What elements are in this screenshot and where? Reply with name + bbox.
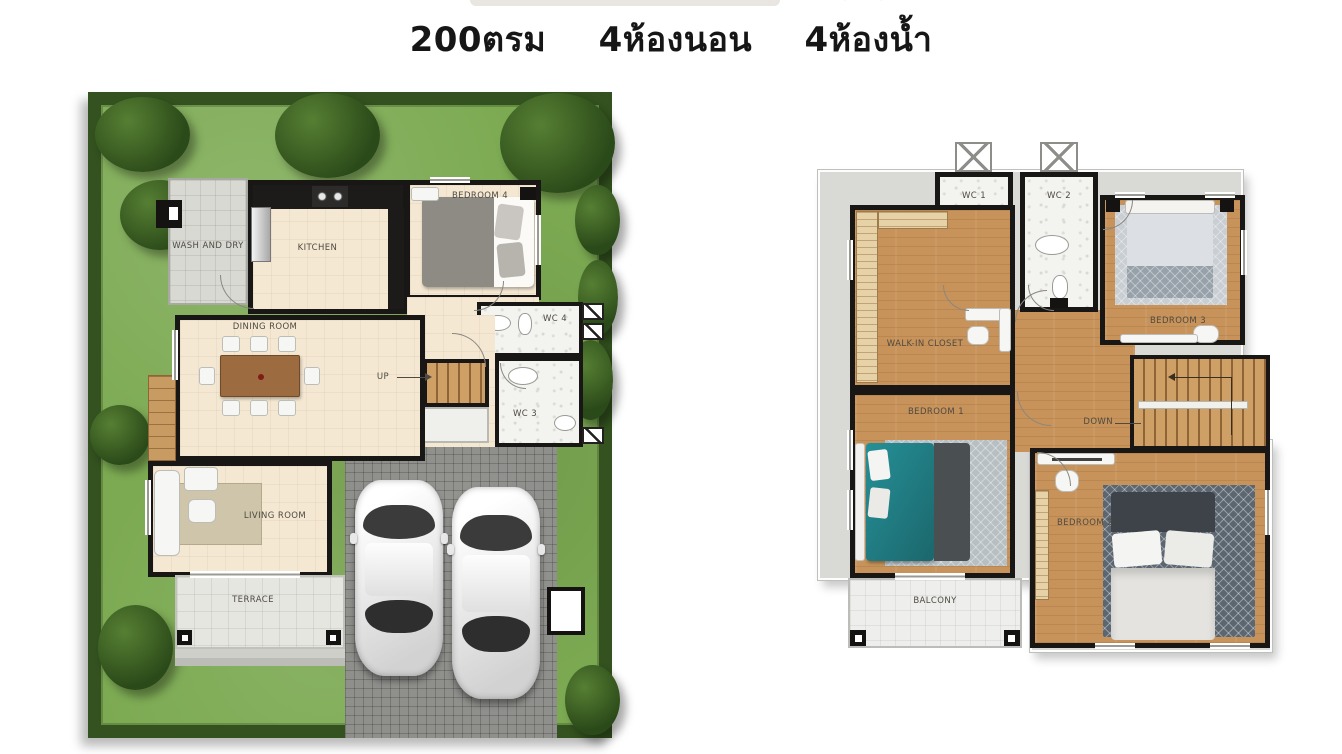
- stair-path-line: [1172, 377, 1232, 378]
- car-mirror: [441, 533, 448, 544]
- car: [452, 487, 540, 699]
- label-wc-2: WC 2: [1022, 192, 1096, 201]
- window: [1115, 192, 1145, 198]
- toilet: [1052, 275, 1068, 299]
- column-core: [1008, 635, 1015, 642]
- garden-palm-tree: [90, 405, 150, 465]
- stair-landing: [423, 407, 489, 443]
- dining-chair: [222, 400, 240, 416]
- bed-pillow: [867, 487, 890, 519]
- label-terrace: TERRACE: [203, 596, 303, 605]
- side-gate: [547, 587, 585, 635]
- garden-palm-tree: [275, 93, 380, 178]
- label-dining-room: DINING ROOM: [215, 323, 315, 332]
- label-bedroom-4: BEDROOM 4: [430, 192, 530, 201]
- car-windshield: [363, 505, 435, 538]
- balcony-column: [1004, 630, 1020, 646]
- window: [535, 215, 541, 265]
- car-mirror: [350, 533, 357, 544]
- car-mirror: [447, 544, 454, 555]
- floor-plan-page: 200ตรม 4ห้องนอน 4ห้องน้ำ: [0, 0, 1342, 754]
- closet-shelving: [878, 211, 948, 229]
- down-arrow-line: [1115, 423, 1141, 424]
- label-bedroom-3: BEDROOM 3: [1118, 317, 1238, 326]
- nightstand: [1220, 200, 1234, 212]
- column-core: [182, 635, 188, 641]
- garden-tree: [95, 97, 190, 172]
- window: [172, 330, 178, 380]
- column-core: [855, 635, 862, 642]
- terrace-column: [177, 630, 192, 645]
- up-arrow-line: [397, 377, 427, 378]
- stair-arrowhead-icon: [1168, 373, 1175, 381]
- bed-blanket: [934, 443, 970, 561]
- dining-chair: [250, 400, 268, 416]
- label-wc-4: WC 4: [530, 315, 580, 324]
- car: [355, 480, 443, 676]
- utility-meter-window: [169, 207, 178, 220]
- bed-pillow: [494, 203, 524, 240]
- roof-vent-icon: [1040, 142, 1078, 172]
- label-bedroom-1: BEDROOM 1: [876, 408, 996, 417]
- car-rear-window: [462, 616, 531, 652]
- dining-table: [220, 355, 300, 397]
- label-bedroom-2: BEDROOM 2: [1025, 519, 1145, 528]
- window: [430, 177, 470, 183]
- bed-pillow: [867, 449, 891, 481]
- bed-duvet: [1127, 214, 1213, 266]
- window: [145, 480, 151, 535]
- stove-icon: [312, 186, 348, 207]
- dining-chair: [250, 336, 268, 352]
- car-roof: [462, 555, 531, 612]
- kitchen-counter-side: [388, 209, 404, 309]
- car-rear-window: [365, 600, 434, 633]
- window: [1265, 490, 1271, 535]
- closet-shelving: [856, 211, 878, 383]
- kitchen-sink-unit: [251, 207, 271, 262]
- dining-chair: [199, 367, 215, 385]
- cropped-title-banner: [470, 0, 780, 6]
- label-up: UP: [370, 373, 396, 382]
- dining-chair: [278, 336, 296, 352]
- second-floor-plan: WC 1 WC 2 WALK-IN CLOSET BEDROOM 3 BEDRO…: [815, 140, 1280, 655]
- window: [1241, 230, 1247, 275]
- garden-tree: [575, 185, 620, 255]
- balcony: [848, 578, 1022, 648]
- label-living-room: LIVING ROOM: [225, 512, 325, 521]
- title-bedrooms: 4ห้องนอน: [599, 12, 753, 66]
- window: [847, 430, 853, 470]
- balcony-column: [850, 630, 866, 646]
- label-kitchen: KITCHEN: [275, 244, 360, 253]
- coffee-table: [188, 499, 216, 523]
- first-floor-plan: WASH AND DRY KITCHEN BEDROOM 4 WC 4 WC 3…: [70, 85, 615, 745]
- dining-chair: [222, 336, 240, 352]
- roof-vent-icon: [955, 142, 992, 172]
- bed-pillow: [1112, 530, 1163, 568]
- garden-palm-tree: [565, 665, 620, 735]
- dresser: [1120, 334, 1198, 343]
- terrace-step: [175, 649, 345, 658]
- bed-headboard: [1125, 200, 1215, 214]
- bed: [422, 197, 534, 287]
- sliding-door: [190, 571, 300, 578]
- ac-unit-icon: [582, 427, 604, 444]
- car-mirror: [538, 544, 545, 555]
- staircase-down: [1130, 355, 1270, 450]
- room-dining: [175, 315, 425, 461]
- toilet: [554, 415, 576, 431]
- window: [847, 240, 853, 280]
- bed-duvet: [1111, 568, 1215, 640]
- page-title: 200ตรม 4ห้องนอน 4ห้องน้ำ: [0, 12, 1342, 66]
- utility-meter-box: [156, 200, 182, 228]
- armchair: [184, 467, 218, 491]
- garden-tree: [500, 93, 615, 193]
- bed-headboard: [855, 443, 865, 561]
- window: [847, 490, 853, 530]
- stair-path-line: [1231, 377, 1232, 435]
- window: [1210, 643, 1250, 649]
- terrace: [175, 575, 345, 649]
- ac-unit-icon: [582, 323, 604, 340]
- car-windshield: [460, 515, 532, 551]
- garden-palm-tree: [98, 605, 173, 690]
- sink: [1035, 235, 1069, 255]
- table-centerpiece: [258, 374, 264, 380]
- window: [1095, 643, 1135, 649]
- title-bathrooms: 4ห้องน้ำ: [804, 12, 932, 66]
- label-down: DOWN: [1065, 418, 1113, 427]
- closet-shelving: [1035, 490, 1049, 600]
- car-roof: [365, 543, 434, 596]
- dining-chair: [278, 400, 296, 416]
- garden-deck-steps: [148, 375, 176, 461]
- closet-counter: [999, 308, 1011, 352]
- sofa: [154, 470, 180, 556]
- label-wash-and-dry: WASH AND DRY: [166, 242, 250, 251]
- bed-pillow: [1164, 530, 1215, 568]
- label-wc-1: WC 1: [937, 192, 1011, 201]
- bed-duvet: [422, 197, 494, 287]
- bed-blanket: [1127, 266, 1213, 298]
- terrace-column: [326, 630, 341, 645]
- label-walk-in-closet: WALK-IN CLOSET: [855, 340, 995, 349]
- bed-pillow: [496, 242, 525, 279]
- label-balcony: BALCONY: [865, 597, 1005, 606]
- dining-chair: [304, 367, 320, 385]
- window: [1205, 192, 1235, 198]
- label-wc-3: WC 3: [500, 410, 550, 419]
- column-core: [330, 635, 336, 641]
- sliding-door: [895, 573, 965, 580]
- terrace-step: [175, 658, 345, 666]
- ac-unit-icon: [582, 303, 604, 320]
- up-arrowhead-icon: [425, 373, 432, 381]
- title-area: 200ตรม: [410, 12, 547, 66]
